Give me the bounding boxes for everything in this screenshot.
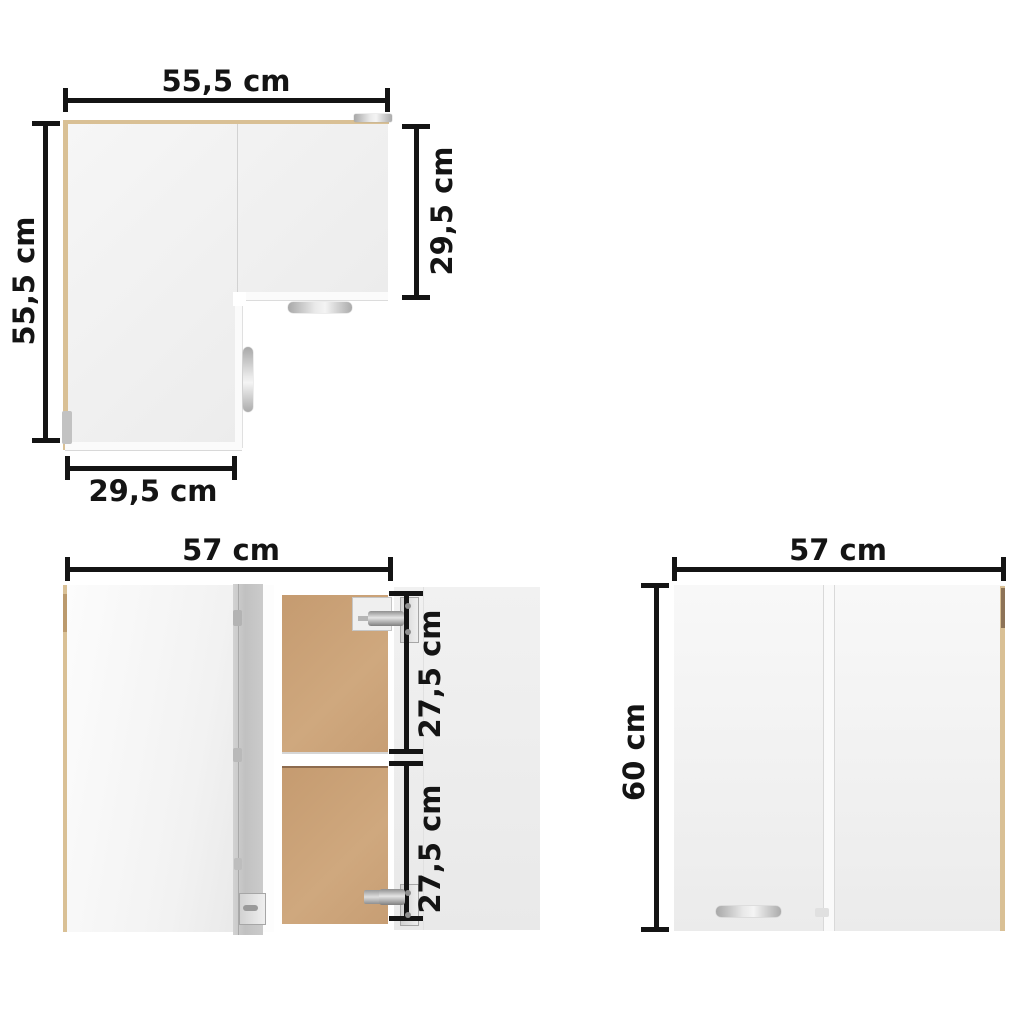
wood-edge-top <box>64 120 389 124</box>
wood-edge-door-left-dark <box>63 594 67 632</box>
hinge-mark-middle <box>233 748 242 762</box>
front-edge-right-wing <box>242 292 388 301</box>
dim-line-right-depth <box>414 126 419 298</box>
dim-cap <box>402 124 430 129</box>
dim-cap <box>389 749 423 754</box>
dim-label-upper-compartment: 27,5 cm <box>413 609 447 738</box>
corner-notch <box>233 292 246 306</box>
dim-line-top-width <box>65 98 388 103</box>
closed-door-handle <box>716 906 781 917</box>
dim-cap <box>402 295 430 300</box>
wood-edge-closed-right-dark <box>1001 588 1005 628</box>
hinge-bottom-screw-dot <box>405 912 411 918</box>
wood-edge-door-left <box>63 585 67 932</box>
closed-gap-catch <box>815 908 829 917</box>
wood-edge-closed-right <box>1000 586 1005 931</box>
wood-edge-left <box>63 120 68 450</box>
dim-label-left-height: 55,5 cm <box>7 216 41 345</box>
cabinet-dimension-diagram: 55,5 cm 55,5 cm 29,5 cm 29,5 cm <box>0 0 1024 1024</box>
hinge-top-arm <box>368 611 404 626</box>
dim-cap <box>389 761 423 766</box>
door-handle-right-wing <box>288 302 352 313</box>
dim-label-open-width: 57 cm <box>182 533 280 567</box>
closed-cabinet-body <box>674 585 1004 931</box>
dim-label-closed-height: 60 cm <box>617 703 651 801</box>
front-edge-vertical-wing <box>235 300 243 448</box>
dim-cap <box>672 557 677 581</box>
dim-label-lower-compartment: 27,5 cm <box>413 784 447 913</box>
dim-cap <box>63 88 68 112</box>
hinge-bottom-screw-dot <box>405 890 411 896</box>
dim-line-closed-width <box>674 567 1004 572</box>
dim-cap <box>641 927 669 932</box>
cabinet-side-wall <box>263 585 274 932</box>
dim-label-right-depth: 29,5 cm <box>425 146 459 275</box>
hinge-plate-bottom-left <box>62 411 72 444</box>
hinge-top-screw-dot <box>405 603 411 609</box>
dim-line-upper-compartment <box>404 593 409 752</box>
shelf-front-edge <box>282 752 388 754</box>
top-view-vertical-wing <box>65 121 242 450</box>
dim-line-open-width <box>67 567 391 572</box>
hinge-mark-lower <box>234 858 242 870</box>
dim-line-left-height <box>43 123 48 441</box>
hinge-top-screw-dot <box>405 629 411 635</box>
dim-cap <box>232 456 237 480</box>
dim-label-closed-width: 57 cm <box>789 533 887 567</box>
door-handle-left-wing <box>243 347 253 412</box>
dim-cap <box>65 456 70 480</box>
closed-door-gap <box>823 585 835 931</box>
dim-cap <box>32 438 60 443</box>
dim-label-bottom-width: 29,5 cm <box>88 474 217 508</box>
door-handle-top-right <box>354 114 392 122</box>
dim-cap <box>65 557 70 581</box>
dim-line-closed-height <box>654 585 659 930</box>
dim-cap <box>641 583 669 588</box>
hinge-plate-screw-slot <box>243 905 258 911</box>
hinge-bottom-arm <box>379 889 405 905</box>
front-edge-bottom <box>65 442 242 451</box>
dim-label-top-width: 55,5 cm <box>161 64 290 98</box>
dim-line-bottom-width <box>67 466 235 471</box>
hinge-mark-upper <box>233 610 242 626</box>
dim-cap <box>389 591 423 596</box>
door-divider-line <box>237 124 238 293</box>
dim-cap <box>385 88 390 112</box>
dim-cap <box>1001 557 1006 581</box>
dim-cap <box>388 557 393 581</box>
dim-cap <box>32 121 60 126</box>
left-door-panel <box>66 585 237 932</box>
